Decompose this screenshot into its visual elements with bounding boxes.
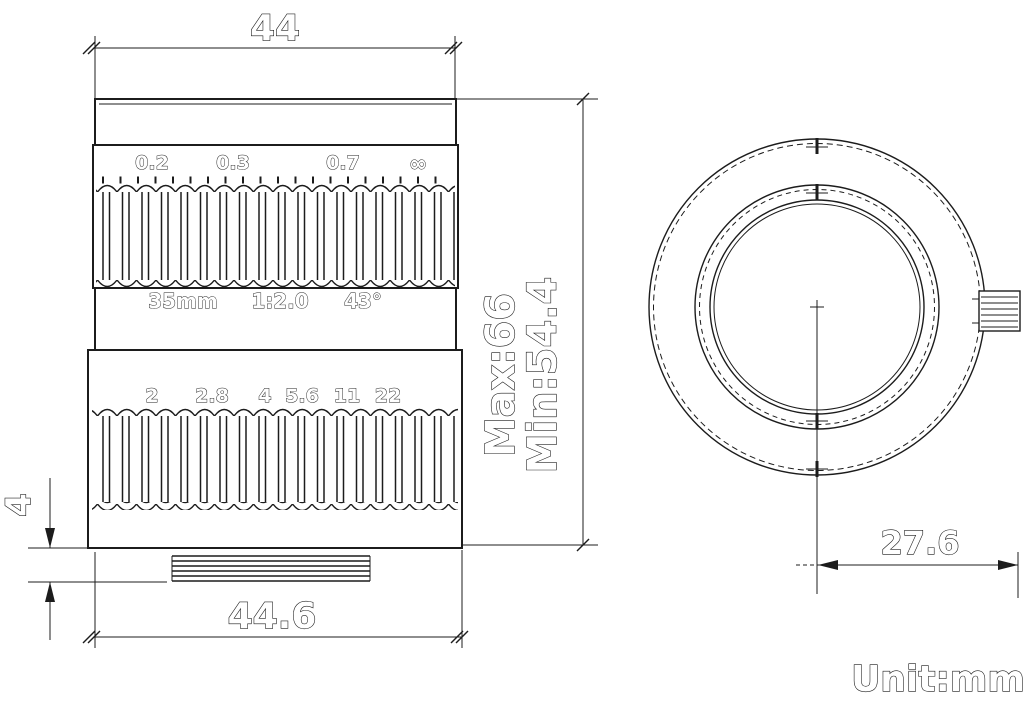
aperture-scale-4: 11 — [334, 385, 360, 407]
aperture-scale-3: 5.6 — [285, 385, 319, 407]
drawing-canvas: 44 Max:66 Min:54.4 0.2 0.3 0.7 ∞ — [0, 0, 1024, 715]
center-line — [810, 300, 824, 594]
dim-center-to-screw-label: 27.6 — [881, 524, 960, 562]
focus-knurl-ribs — [96, 192, 455, 280]
spec-focal-length: 35mm — [148, 289, 218, 313]
spec-band: 35mm 1:2.0 43° — [95, 288, 456, 350]
mount-thread — [172, 556, 370, 581]
focus-knurl-bottom — [96, 280, 455, 288]
front-rim — [95, 99, 456, 145]
aperture-ring: 2 2.8 4 5.6 11 22 — [88, 350, 462, 548]
thumbscrew — [972, 291, 1020, 331]
aperture-knurl-top — [92, 408, 458, 416]
focus-ring: 0.2 0.3 0.7 ∞ — [93, 145, 458, 288]
front-view: 27.6 — [649, 138, 1020, 598]
focus-scale-2: 0.7 — [326, 152, 360, 174]
spec-aperture-ratio: 1:2.0 — [251, 289, 308, 313]
dimension-top-width: 44 — [83, 8, 462, 99]
dim-length-max-label: Max:66 — [478, 293, 524, 457]
lens-technical-drawing: 44 Max:66 Min:54.4 0.2 0.3 0.7 ∞ — [0, 0, 1024, 715]
dimension-overall-length: Max:66 Min:54.4 — [456, 93, 598, 551]
side-view: 44 Max:66 Min:54.4 0.2 0.3 0.7 ∞ — [0, 8, 598, 648]
aperture-knurl-bottom — [92, 502, 458, 510]
dim-bottom-width-label: 44.6 — [228, 596, 317, 637]
focus-scale-0: 0.2 — [135, 152, 169, 174]
aperture-scale-2: 4 — [258, 385, 271, 407]
spec-angle-of-view: 43° — [344, 289, 382, 313]
aperture-knurl-ribs — [92, 416, 458, 502]
unit-label: Unit:mm — [851, 659, 1024, 700]
dim-top-width-label: 44 — [250, 8, 300, 49]
dimension-center-to-screw: 27.6 — [796, 524, 1018, 598]
aperture-scale-1: 2.8 — [195, 385, 229, 407]
focus-scale-1: 0.3 — [216, 152, 250, 174]
aperture-scale-0: 2 — [145, 385, 158, 407]
focus-scale-infinity: ∞ — [409, 152, 427, 177]
dim-thread-length-label: 4 — [0, 493, 39, 517]
focus-knurl-top — [96, 184, 455, 192]
dimension-bottom-width: 44.6 — [83, 550, 468, 648]
aperture-scale-5: 22 — [375, 385, 401, 407]
dim-length-min-label: Min:54.4 — [520, 277, 566, 474]
